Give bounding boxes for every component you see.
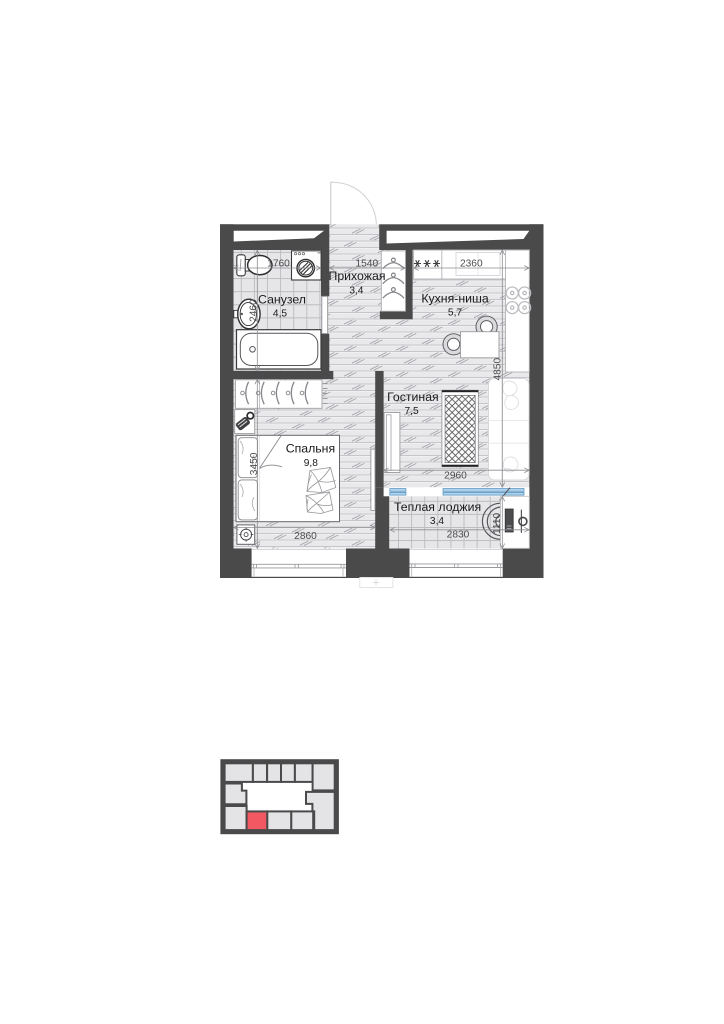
- svg-text:2360: 2360: [460, 258, 483, 269]
- svg-text:7,5: 7,5: [405, 406, 419, 417]
- svg-text:1110: 1110: [492, 512, 503, 533]
- svg-text:Теплая лоджия: Теплая лоджия: [394, 500, 481, 514]
- svg-text:2860: 2860: [294, 531, 317, 542]
- svg-text:3450: 3450: [249, 452, 260, 475]
- svg-text:2960: 2960: [444, 471, 467, 482]
- svg-text:5,7: 5,7: [448, 308, 462, 319]
- svg-text:1540: 1540: [355, 258, 378, 269]
- svg-text:4,5: 4,5: [273, 309, 287, 320]
- svg-text:Спальня: Спальня: [286, 441, 335, 455]
- svg-text:9,8: 9,8: [304, 458, 318, 469]
- svg-text:3,4: 3,4: [349, 285, 363, 296]
- svg-text:4850: 4850: [492, 358, 503, 381]
- svg-text:1760: 1760: [267, 258, 290, 269]
- svg-text:2830: 2830: [447, 530, 470, 541]
- svg-text:3,4: 3,4: [430, 516, 444, 527]
- svg-text:Гостиная: Гостиная: [387, 390, 439, 404]
- svg-text:Кухня-ниша: Кухня-ниша: [421, 292, 489, 306]
- svg-text:Прихожая: Прихожая: [329, 269, 386, 283]
- svg-text:Санузел: Санузел: [258, 292, 306, 306]
